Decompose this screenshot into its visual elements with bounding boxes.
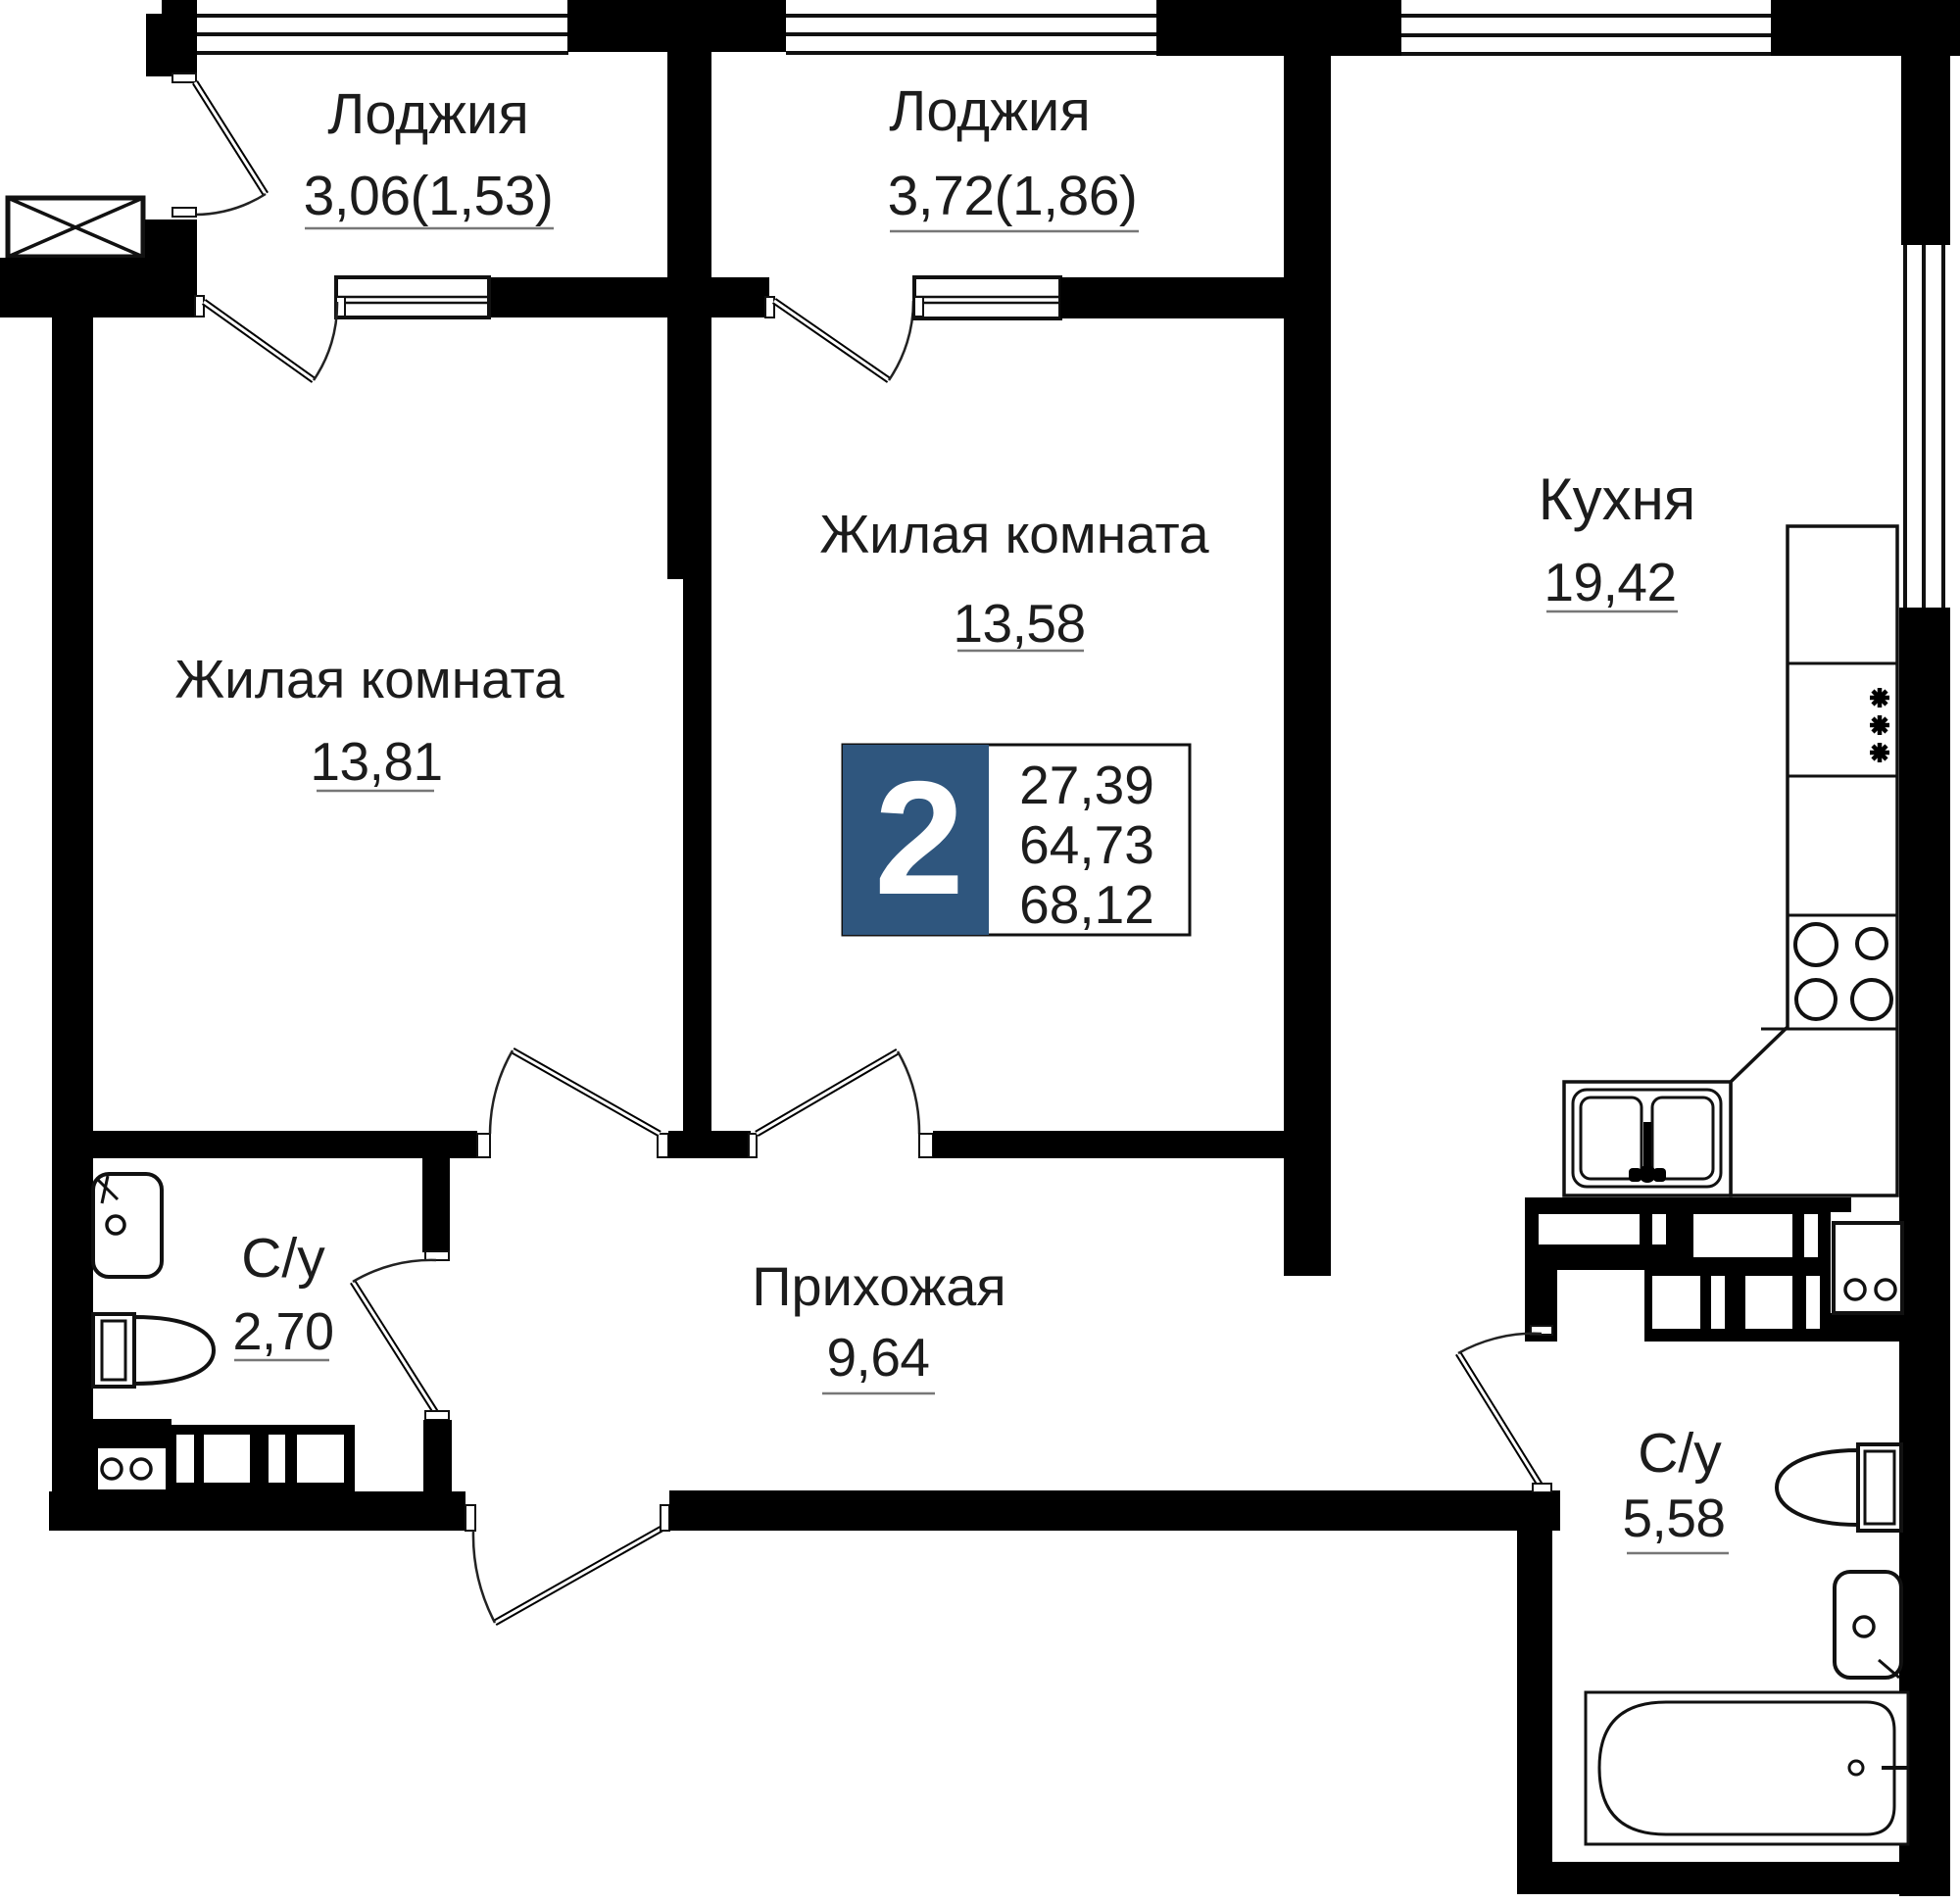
svg-text:Лоджия: Лоджия — [889, 79, 1091, 143]
svg-text:С/у: С/у — [241, 1227, 325, 1290]
svg-text:Жилая комната: Жилая комната — [819, 504, 1209, 564]
svg-text:2,70: 2,70 — [232, 1302, 333, 1361]
svg-text:5,58: 5,58 — [1622, 1488, 1725, 1548]
svg-text:13,81: 13,81 — [310, 731, 442, 792]
svg-text:64,73: 64,73 — [1019, 814, 1154, 875]
svg-text:Кухня: Кухня — [1539, 466, 1696, 532]
svg-text:Лоджия: Лоджия — [327, 82, 529, 146]
svg-text:3,06(1,53): 3,06(1,53) — [304, 165, 554, 227]
svg-text:68,12: 68,12 — [1019, 874, 1154, 935]
svg-text:27,39: 27,39 — [1019, 755, 1154, 815]
svg-text:Прихожая: Прихожая — [752, 1255, 1006, 1317]
svg-text:13,58: 13,58 — [953, 593, 1085, 654]
svg-text:3,72(1,86): 3,72(1,86) — [888, 165, 1138, 227]
svg-text:2: 2 — [874, 748, 964, 928]
svg-text:Жилая комната: Жилая комната — [174, 649, 564, 709]
svg-text:С/у: С/у — [1638, 1422, 1722, 1485]
svg-text:9,64: 9,64 — [826, 1327, 929, 1388]
svg-text:19,42: 19,42 — [1543, 552, 1676, 612]
